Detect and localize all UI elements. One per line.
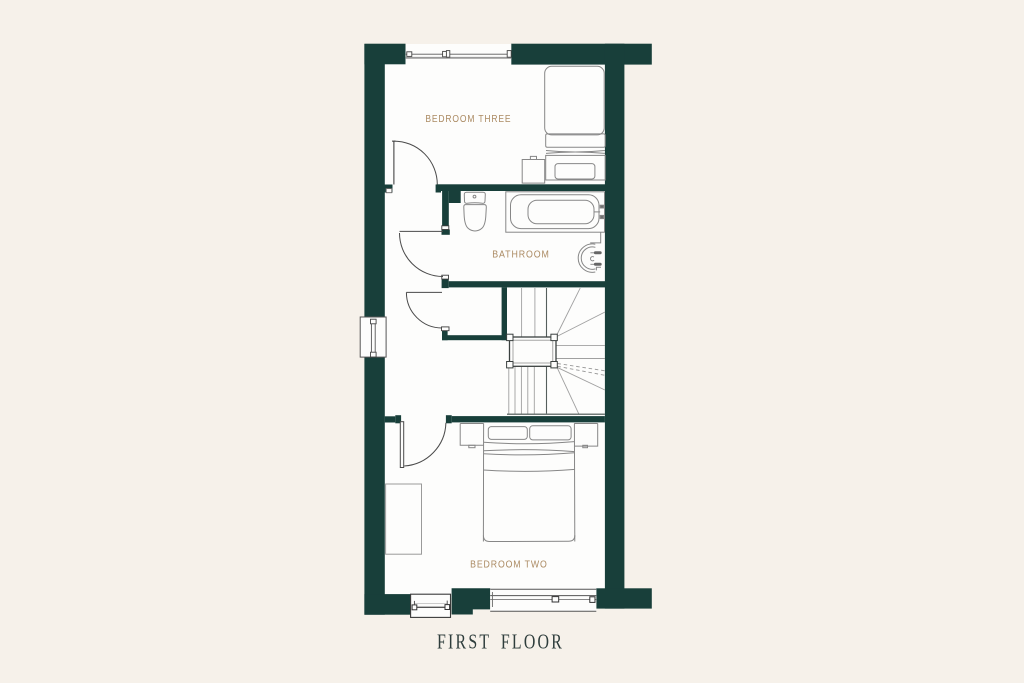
svg-text:BEDROOM THREE: BEDROOM THREE — [425, 114, 511, 125]
svg-text:BEDROOM TWO: BEDROOM TWO — [470, 560, 548, 571]
svg-text:BATHROOM: BATHROOM — [492, 250, 550, 261]
svg-text:FIRST FLOOR: FIRST FLOOR — [437, 630, 564, 654]
